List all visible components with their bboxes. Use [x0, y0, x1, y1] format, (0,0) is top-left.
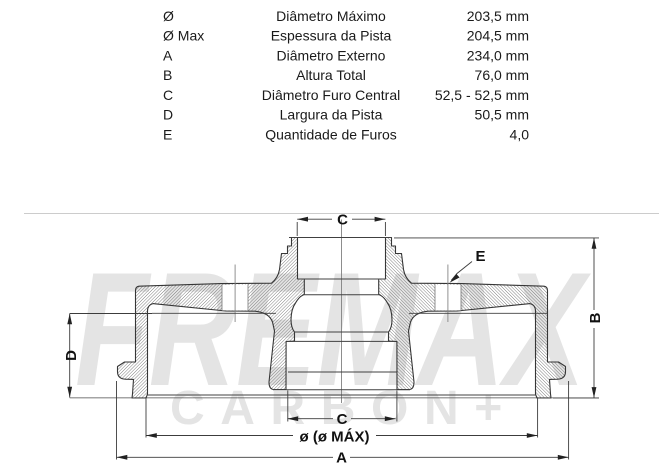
- svg-text:Diâmetro Externo: Diâmetro Externo: [277, 47, 386, 63]
- svg-text:52,5 - 52,5 mm: 52,5 - 52,5 mm: [435, 87, 529, 103]
- svg-text:Altura Total: Altura Total: [296, 67, 366, 83]
- svg-text:76,0 mm: 76,0 mm: [475, 67, 529, 83]
- svg-text:B: B: [163, 67, 172, 83]
- svg-text:A: A: [163, 47, 173, 63]
- svg-text:D: D: [163, 107, 173, 123]
- svg-text:Ø Max: Ø Max: [163, 28, 204, 44]
- svg-text:Diâmetro Máximo: Diâmetro Máximo: [276, 8, 386, 24]
- svg-text:50,5 mm: 50,5 mm: [475, 107, 529, 123]
- svg-text:C: C: [163, 87, 173, 103]
- svg-text:4,0: 4,0: [510, 126, 530, 142]
- svg-text:Diâmetro Furo Central: Diâmetro Furo Central: [262, 87, 401, 103]
- svg-text:B: B: [587, 312, 604, 323]
- svg-text:C: C: [337, 411, 348, 428]
- svg-text:C: C: [337, 212, 348, 229]
- svg-text:A: A: [336, 450, 347, 467]
- svg-text:Largura da Pista: Largura da Pista: [280, 107, 383, 123]
- svg-text:D: D: [63, 350, 80, 361]
- svg-text:234,0 mm: 234,0 mm: [467, 47, 529, 63]
- svg-text:ø (ø MÁX): ø (ø MÁX): [300, 429, 370, 446]
- svg-text:Ø: Ø: [163, 8, 174, 24]
- svg-text:203,5 mm: 203,5 mm: [467, 8, 529, 24]
- svg-text:E: E: [475, 248, 485, 265]
- svg-text:204,5 mm: 204,5 mm: [467, 28, 529, 44]
- svg-text:E: E: [163, 126, 172, 142]
- svg-text:Espessura da Pista: Espessura da Pista: [271, 28, 392, 44]
- svg-text:Quantidade de Furos: Quantidade de Furos: [265, 126, 397, 142]
